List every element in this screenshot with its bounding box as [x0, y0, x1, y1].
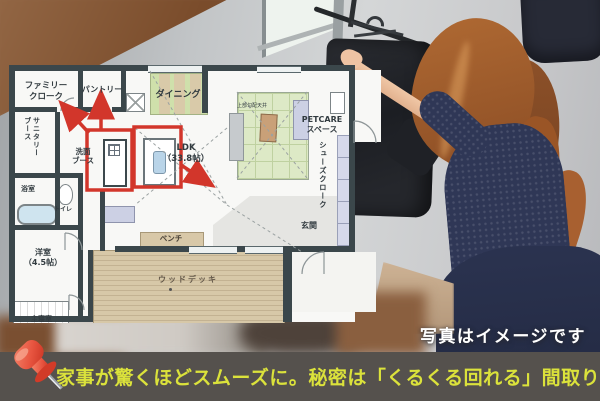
- floor-plan: ファミリー クローク パントリー ダイニング サニタリー ブース 洗面 ブース …: [9, 65, 381, 323]
- room-label-bathroom: 浴室: [21, 185, 35, 194]
- room-label-sanitary-booth: サニタリー ブース: [23, 117, 41, 179]
- pushpin-icon: [2, 334, 82, 401]
- room-label-toilet: トイレ: [54, 206, 72, 214]
- room-label-western-room: 洋室 （4.5帖）: [17, 248, 69, 268]
- room-label-dining: ダイニング: [150, 90, 206, 101]
- ad-image: ファミリー クローク パントリー ダイニング サニタリー ブース 洗面 ブース …: [0, 0, 600, 401]
- label-wood-deck: ウッドデッキ: [93, 275, 283, 285]
- room-label-shoe-closet: シューズクローク: [318, 141, 327, 217]
- photo-disclaimer: 写真はイメージです: [420, 322, 586, 347]
- room-label-entrance: 玄関: [301, 221, 317, 231]
- label-bench: ベンチ: [140, 234, 202, 243]
- room-label-pantry: パントリー: [80, 85, 124, 95]
- red-flow-arrows: [63, 95, 210, 184]
- hanging-shirt-right: [520, 0, 600, 64]
- room-label-ldk: LDK （33.8帖）: [157, 143, 215, 164]
- note-sloped-ceiling: 上部勾配天井: [237, 103, 267, 109]
- room-label-petcare: PETCARE スペース: [295, 115, 349, 135]
- room-label-washbasin-booth: 洗面 ブース: [67, 147, 99, 166]
- room-label-master-bedroom: 主寝室: [31, 315, 52, 323]
- headline-banner: 家事が驚くほどスムーズに。秘密は「くるくる回れる」間取り: [0, 352, 600, 401]
- room-label-family-closet: ファミリー クローク: [15, 81, 77, 102]
- headline-text: 家事が驚くほどスムーズに。秘密は「くるくる回れる」間取り: [56, 363, 600, 390]
